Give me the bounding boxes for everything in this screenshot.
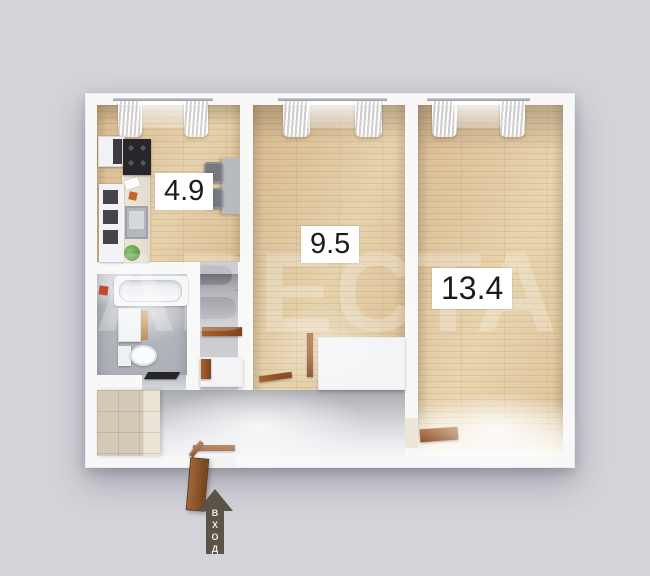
wood-shelf [141,310,148,340]
sheer-curtain [454,101,502,128]
room-area-label: 9.5 [301,226,359,263]
bathtub [114,276,188,306]
floor-plan-canvas: АВЕСТА 4.9 9.5 13.4 ВХОД [0,0,650,576]
room-area-label: 4.9 [155,173,213,210]
curtain-panel [500,101,525,137]
entrance-arrow: ВХОД [197,489,233,555]
medium-room-door [307,333,313,377]
large-room-door [420,427,459,443]
kitchen-window-curtains [118,105,208,143]
dining-table [222,158,240,214]
open-door-panel [202,327,242,336]
cabinet-shelf [103,210,118,224]
arrow-shaft: ВХОД [206,510,224,554]
room-area-label: 13.4 [432,268,512,309]
plant [124,245,140,261]
medium-room-window-curtains [283,105,382,143]
washing-machine [118,308,141,342]
large-room-window-curtains [432,105,525,143]
entrance-label: ВХОД [210,508,220,556]
kitchen-sink [125,206,148,239]
kitchen-cabinet [99,184,124,262]
towel [98,285,108,295]
large-room-doorway [405,418,418,448]
hallway-wardrobe [97,390,160,456]
curtain-panel [283,101,310,137]
kitchen-doorway [200,262,238,274]
sheer-curtain [307,101,359,128]
fridge [98,136,125,167]
bath-mat [144,372,180,379]
open-door-panel [201,359,211,379]
curtain-panel [184,101,208,137]
fridge-door [113,139,122,164]
sheer-curtain [140,101,187,128]
curtain-panel [355,101,382,137]
kitchen-item [128,191,137,200]
bathtub-basin [119,280,182,302]
built-in-closet [318,337,405,390]
sink-basin [129,211,144,229]
cabinet-shelf [103,230,118,244]
stove [123,139,151,175]
cabinet-shelf [103,190,118,204]
toilet-bowl [130,345,157,366]
